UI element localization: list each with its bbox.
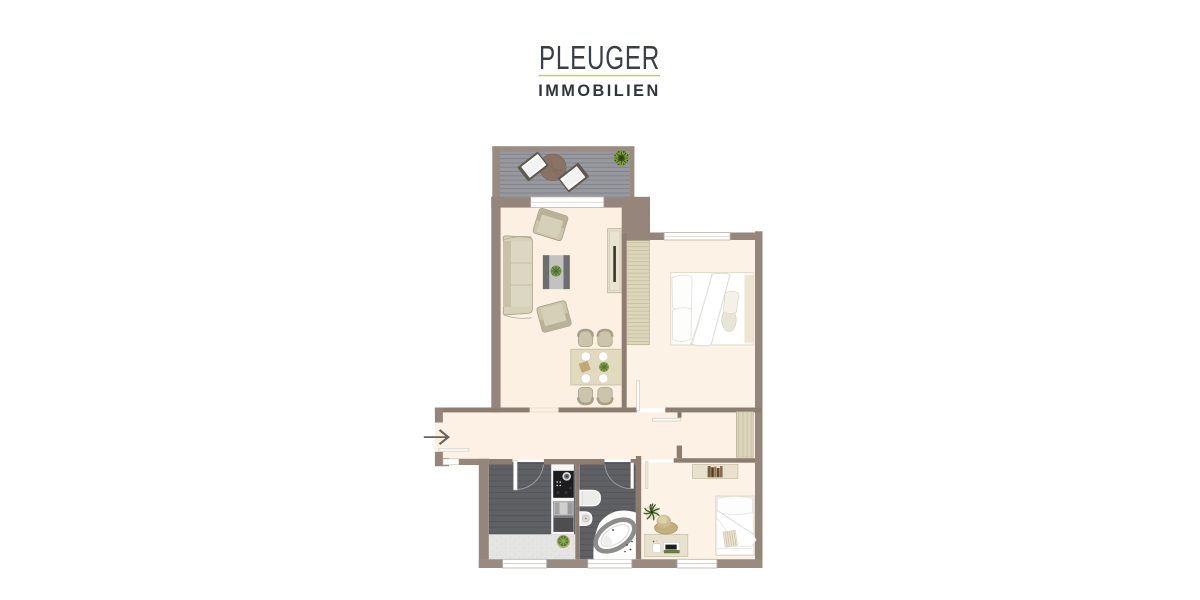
svg-text:PLEUGER: PLEUGER [539,39,660,76]
svg-text:IMMOBILIEN: IMMOBILIEN [538,82,661,100]
